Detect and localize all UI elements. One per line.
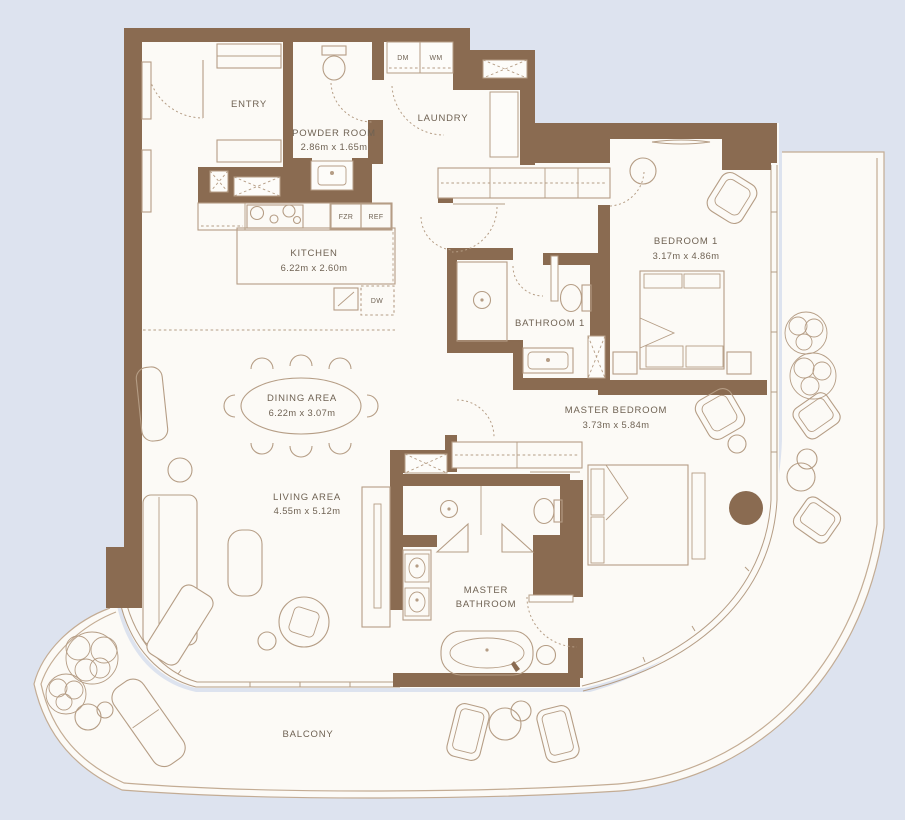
floor-plan-page: ENTRY POWDER ROOM 2.86m x 1.65m LAUNDRY … <box>0 0 905 820</box>
wall-powder-right-upper <box>372 42 384 80</box>
wall-powder-right-lower <box>368 120 383 164</box>
master-bedroom-label: MASTER BEDROOM <box>565 405 668 416</box>
wall-mbath-right-block <box>533 535 583 597</box>
wall-bath1-top-left <box>447 248 513 260</box>
wall-mbath-top <box>400 474 570 486</box>
kitchen-dims: 6.22m x 2.60m <box>281 263 348 273</box>
mbath-shower-head <box>451 477 458 483</box>
dining-table <box>241 378 361 434</box>
powder-room-label: POWDER ROOM <box>292 128 376 139</box>
wall-right-of-wm <box>453 42 470 90</box>
dining-dims: 6.22m x 3.07m <box>269 408 336 418</box>
wall-powder-bottom <box>293 190 372 203</box>
fridge-label: REF <box>369 214 384 221</box>
powder-room-dims: 2.86m x 1.65m <box>301 142 368 152</box>
entry-label: ENTRY <box>231 99 267 110</box>
wall-bedroom1-bottom <box>598 380 767 395</box>
wall-bedroom1-top-corner <box>722 123 771 170</box>
entry-bench <box>217 140 281 162</box>
balcony-label: BALCONY <box>282 729 333 740</box>
dryer-label: DM <box>397 55 409 62</box>
dining-label: DINING AREA <box>267 393 337 404</box>
floor-plan: ENTRY POWDER ROOM 2.86m x 1.65m LAUNDRY … <box>0 0 905 820</box>
bath1-pocket-door <box>551 256 558 301</box>
laundry-label: LAUNDRY <box>418 113 469 124</box>
wall-bath1-left <box>447 248 457 347</box>
wall-mbath-stub <box>568 638 583 678</box>
master-bathroom-label-1: MASTER <box>464 585 508 596</box>
master-sliding-door <box>529 595 573 602</box>
dishwasher-label: DW <box>371 298 383 305</box>
kitchen-label: KITCHEN <box>290 248 337 259</box>
powder-vanity <box>311 161 353 190</box>
wall-bath1-bottom <box>447 340 523 353</box>
wall-top <box>124 28 470 42</box>
entry-wall-panel-2 <box>142 150 151 212</box>
wall-bath1-vanity-bottom <box>513 378 610 390</box>
wall-left <box>124 28 142 548</box>
bedroom1-dims: 3.17m x 4.86m <box>653 251 720 261</box>
bedroom1-label: BEDROOM 1 <box>654 236 718 247</box>
living-label: LIVING AREA <box>273 492 341 503</box>
wall-mbath-right-upper <box>560 480 583 537</box>
wall-left-block <box>106 547 142 608</box>
laundry-cabinet <box>490 92 518 157</box>
bathroom1-label: BATHROOM 1 <box>515 318 585 329</box>
kitchen-sink-box <box>210 171 228 192</box>
living-dims: 4.55m x 5.12m <box>274 506 341 516</box>
washer-label: WM <box>429 55 442 62</box>
wall-laundry-vert <box>520 90 535 165</box>
master-bathroom-label-2: BATHROOM <box>456 599 517 610</box>
wall-mbath-mid <box>402 535 437 547</box>
entry-wall-panel-1 <box>142 62 151 119</box>
master-bedroom-dims: 3.73m x 5.84m <box>583 420 650 430</box>
structural-column <box>729 491 763 525</box>
freezer-label: FZR <box>339 214 354 221</box>
powder-sink-drain <box>330 171 334 175</box>
